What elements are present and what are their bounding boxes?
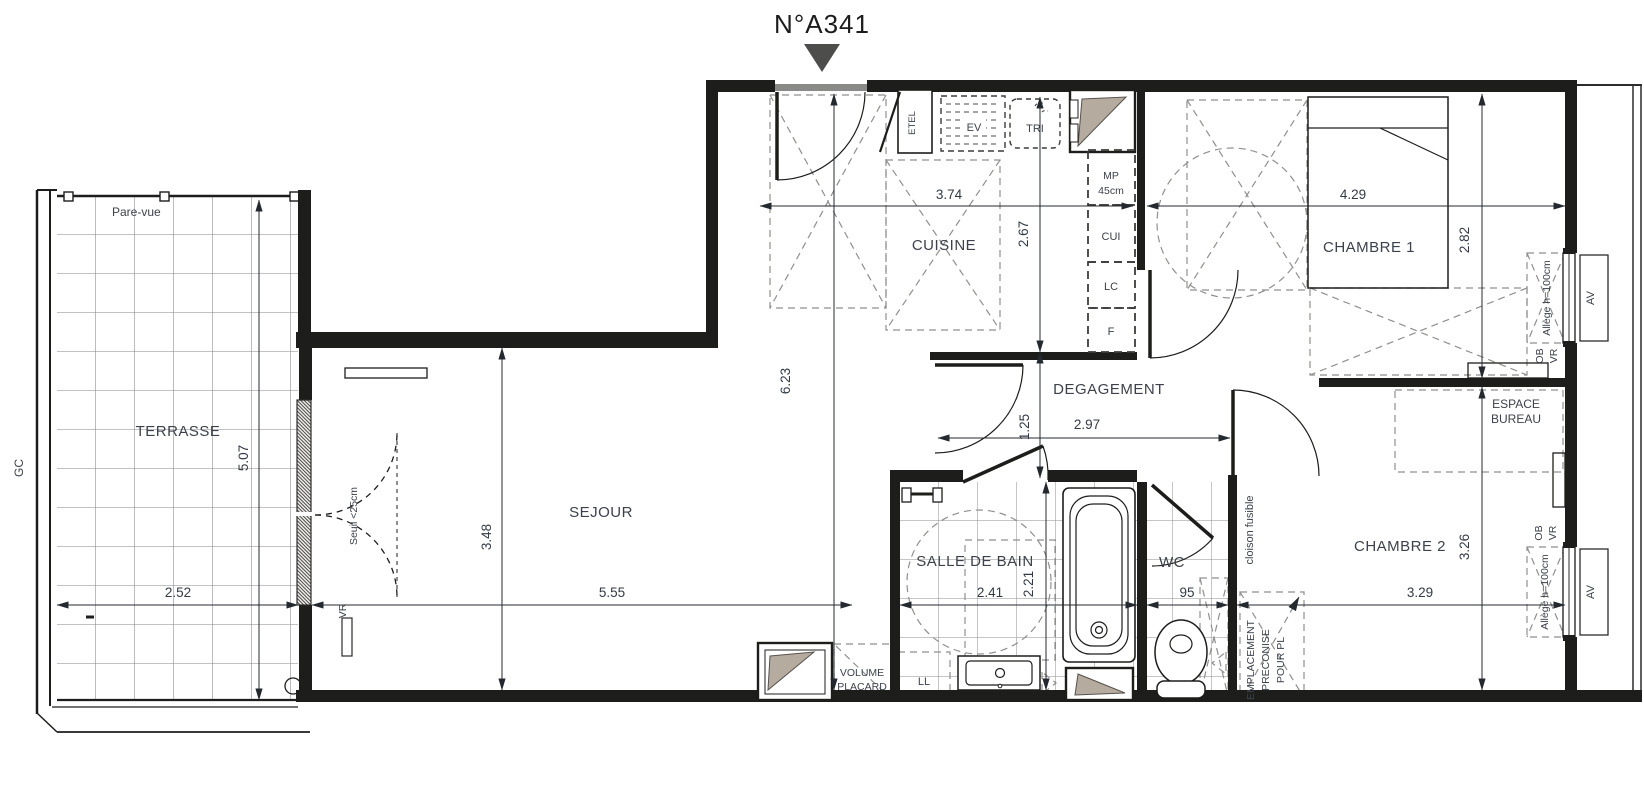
bed [1308, 97, 1448, 288]
mp-size-label: 45cm [1098, 185, 1124, 197]
entrance-threshold [775, 84, 867, 91]
espace-bureau-label-2: BUREAU [1491, 412, 1541, 426]
dim-wc-w: 95 [1179, 585, 1194, 600]
volume-placard-label-2: PLACARD [837, 681, 887, 693]
entrance-marker-icon [804, 44, 840, 72]
bedroom-fixtures [345, 97, 1565, 507]
dim-cuisine-w: 3.74 [936, 187, 963, 202]
chambre1-label: CHAMBRE 1 [1323, 239, 1415, 256]
dim-terrasse-h: 5.07 [236, 445, 251, 471]
av-ch1-label: AV [1585, 290, 1597, 305]
dim-hall-h: 6.23 [778, 368, 793, 394]
seuil-label: Seuil <25cm [348, 487, 360, 545]
ll-label: LL [918, 676, 930, 688]
cui-label: CUI [1102, 231, 1121, 243]
bathtub [1063, 488, 1135, 662]
tri-label: TRI [1026, 123, 1044, 135]
entrance-door [777, 92, 865, 180]
av-ch2-label: AV [1585, 584, 1597, 599]
vr-ch1-label: VR [1548, 348, 1560, 363]
bathroom-shaft [1066, 668, 1133, 700]
terrasse-decking [57, 196, 298, 700]
dim-ch2-h: 3.26 [1457, 534, 1472, 560]
wc-label: WC [1159, 554, 1185, 571]
dim-ch1-h: 2.82 [1457, 227, 1472, 253]
vr-ch2-label: VR [1547, 525, 1559, 540]
dim-deg-w: 2.97 [1074, 417, 1100, 432]
wc-fixtures [1155, 620, 1207, 698]
chambre2-radiator [1553, 453, 1565, 507]
dim-ch1-w: 4.29 [1340, 187, 1366, 202]
allege-ch1-label: Allège h=100cm [1541, 260, 1553, 336]
volume-placard-label-1: VOLUME [840, 667, 884, 679]
dim-terrasse-w: 2.52 [165, 585, 191, 600]
vanity-sink [958, 656, 1040, 690]
chambre2-door [1233, 390, 1319, 476]
entry-shaft [758, 643, 832, 700]
dim-ch2-w: 3.29 [1407, 585, 1433, 600]
cuisine-label: CUISINE [912, 237, 976, 254]
lc-label: LC [1104, 281, 1118, 293]
dim-deg-h: 1.25 [1017, 414, 1032, 440]
pare-vue-label: Pare-vue [112, 205, 161, 219]
floor-plan-canvas: Pare-vue TERRASSE GC [0, 0, 1644, 800]
dim-sejour-h: 3.48 [479, 524, 494, 550]
sejour-label: SEJOUR [569, 504, 633, 521]
floor-plan: Pare-vue TERRASSE GC [0, 0, 1644, 800]
sejour-vr-box [342, 618, 352, 656]
dim-sejour-w: 5.55 [599, 585, 625, 600]
dimension-texts: 2.52 5.55 2.41 95 3.29 3.74 4.29 2.97 5.… [165, 187, 1472, 600]
emplacement-label-1: EMPLACEMENT [1245, 619, 1257, 700]
chambre1-door [1150, 270, 1238, 358]
vr-sejour-label: VR [337, 603, 349, 618]
terrasse-bay-window [297, 400, 311, 605]
apartment-title: N°A341 [774, 9, 870, 72]
mp-label: MP [1103, 170, 1119, 182]
kitchen-door [935, 365, 1023, 453]
f-label: F [1108, 326, 1115, 338]
dim-sdb-w: 2.41 [977, 585, 1003, 600]
ob-ch2-label: OB [1533, 525, 1545, 540]
sejour-radiator [345, 368, 427, 378]
apartment-number: N°A341 [774, 9, 870, 39]
emplacement-label-3: POUR PL [1275, 637, 1287, 683]
emplacement-label-2: PRECONISE [1260, 629, 1272, 691]
chambre2-label: CHAMBRE 2 [1354, 538, 1446, 555]
cloison-fusible-label: cloison fusible [1244, 495, 1256, 564]
dim-sdb-h: 2.21 [1021, 571, 1036, 597]
desk [1468, 363, 1548, 378]
ev-label: EV [967, 122, 982, 134]
salle-de-bain-label: SALLE DE BAIN [916, 553, 1033, 570]
kitchen-fixtures: MP 45cm CUI LC F ETEL EV TRI [880, 90, 1135, 352]
ob-ch1-label: OB [1534, 348, 1546, 363]
espace-bureau-label-1: ESPACE [1492, 397, 1540, 411]
gc-label: GC [12, 459, 26, 477]
dim-cuisine-h: 2.67 [1016, 221, 1031, 247]
terrasse-area: Pare-vue TERRASSE GC [12, 190, 310, 732]
degagement-label: DEGAGEMENT [1053, 381, 1165, 398]
etel-label: ETEL [907, 111, 918, 135]
kitchen-shaft [1070, 90, 1135, 152]
toilet-tank [1157, 681, 1205, 698]
allege-ch2-label: Allège h=100cm [1539, 554, 1551, 630]
bathroom-door [963, 446, 1048, 482]
terrasse-label: TERRASSE [136, 423, 221, 440]
